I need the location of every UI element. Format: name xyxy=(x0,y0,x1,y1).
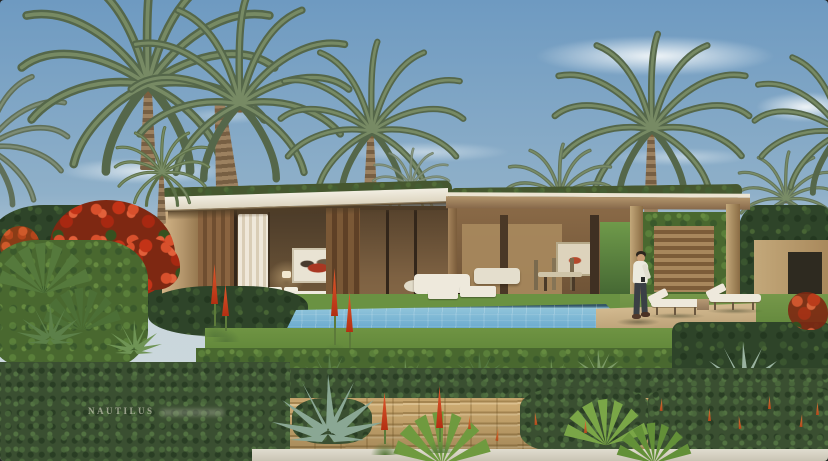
person-phone xyxy=(641,277,645,282)
lounger-leg xyxy=(732,302,734,310)
palm-crown xyxy=(114,124,210,208)
palm-crown xyxy=(752,40,828,198)
lounger-leg xyxy=(656,307,658,315)
living-artwork xyxy=(556,242,594,276)
roof-band-right xyxy=(446,196,750,210)
lounger-leg xyxy=(674,307,676,315)
pool-daybeds xyxy=(428,284,506,304)
fan-palm xyxy=(608,420,700,461)
lounger-leg xyxy=(714,302,716,310)
villa-rendering-scene: NAUTILUS xyxy=(0,0,828,461)
lounger-seat xyxy=(709,294,761,302)
dining-table-leg xyxy=(544,277,547,291)
table-lamp xyxy=(282,271,291,278)
watermark-smudge xyxy=(160,409,224,416)
aloe-flower-spike xyxy=(214,284,238,339)
lounger-seat xyxy=(651,299,703,307)
aloe-flower-spike xyxy=(428,386,452,450)
wood-slat-screen xyxy=(654,226,714,292)
side-table xyxy=(697,299,709,310)
person-shoe xyxy=(632,314,641,319)
garden-path xyxy=(252,449,828,461)
lounger-leg xyxy=(752,302,754,310)
person-leg xyxy=(640,283,648,313)
lounge-chair xyxy=(706,283,764,313)
red-flower-accent xyxy=(788,292,828,330)
sofa xyxy=(474,268,520,284)
lounger-leg xyxy=(694,307,696,315)
watermark-text: NAUTILUS xyxy=(88,407,155,416)
daybed xyxy=(460,286,496,297)
aloe-flower-spike xyxy=(373,392,397,452)
agave-plant xyxy=(96,312,172,354)
dining-table-leg xyxy=(572,277,575,291)
daybed xyxy=(428,290,458,299)
agave-plant xyxy=(4,294,96,344)
